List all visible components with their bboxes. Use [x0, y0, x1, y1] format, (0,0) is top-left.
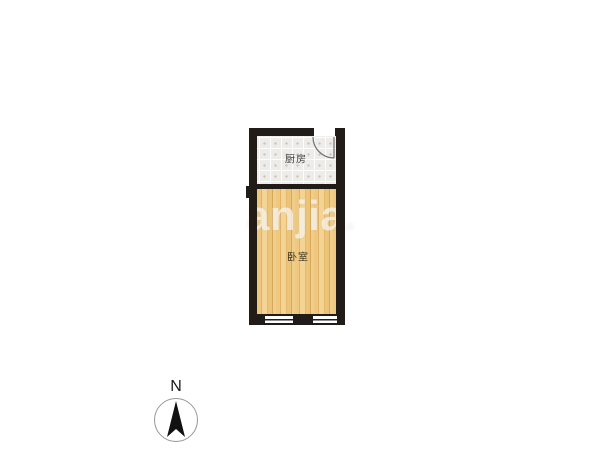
floorplan: 厨房 卧室: [249, 128, 345, 325]
floorplan-image: anjia. 厨房 卧室 N: [0, 0, 600, 450]
compass-needle-icon: [155, 399, 197, 441]
compass-north-label: N: [154, 376, 198, 398]
kitchen-label: 厨房: [285, 151, 307, 166]
compass-ring-icon: [154, 398, 198, 442]
bedroom-label: 卧室: [287, 249, 309, 264]
compass: N: [154, 376, 198, 442]
